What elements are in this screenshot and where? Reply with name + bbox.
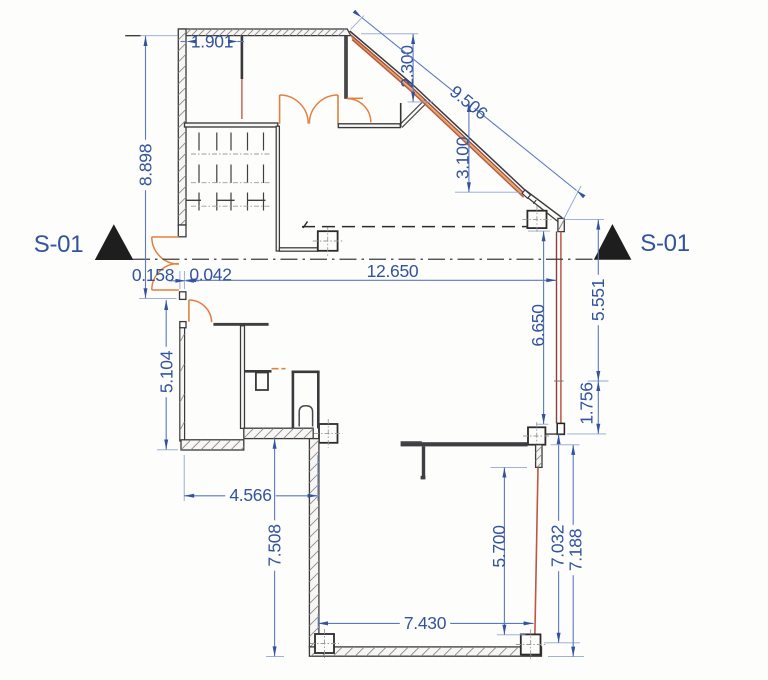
svg-text:1.901: 1.901 <box>191 32 233 52</box>
svg-text:5.551: 5.551 <box>588 279 608 321</box>
svg-text:0.158: 0.158 <box>132 265 174 285</box>
svg-text:8.898: 8.898 <box>136 144 156 186</box>
svg-text:5.104: 5.104 <box>157 350 177 393</box>
svg-text:6.650: 6.650 <box>528 304 548 347</box>
svg-text:7.032: 7.032 <box>548 525 568 567</box>
svg-text:0.042: 0.042 <box>189 265 231 285</box>
svg-text:7.188: 7.188 <box>566 529 586 571</box>
svg-text:7.430: 7.430 <box>404 613 447 633</box>
svg-text:12.650: 12.650 <box>367 261 419 281</box>
svg-text:2.300: 2.300 <box>397 45 417 88</box>
svg-text:S-01: S-01 <box>640 230 690 257</box>
svg-text:3.100: 3.100 <box>452 136 472 179</box>
svg-text:5.700: 5.700 <box>489 525 509 568</box>
svg-text:1.756: 1.756 <box>577 382 597 424</box>
svg-text:4.566: 4.566 <box>229 485 271 505</box>
svg-text:7.508: 7.508 <box>265 524 285 566</box>
svg-text:S-01: S-01 <box>34 231 84 258</box>
